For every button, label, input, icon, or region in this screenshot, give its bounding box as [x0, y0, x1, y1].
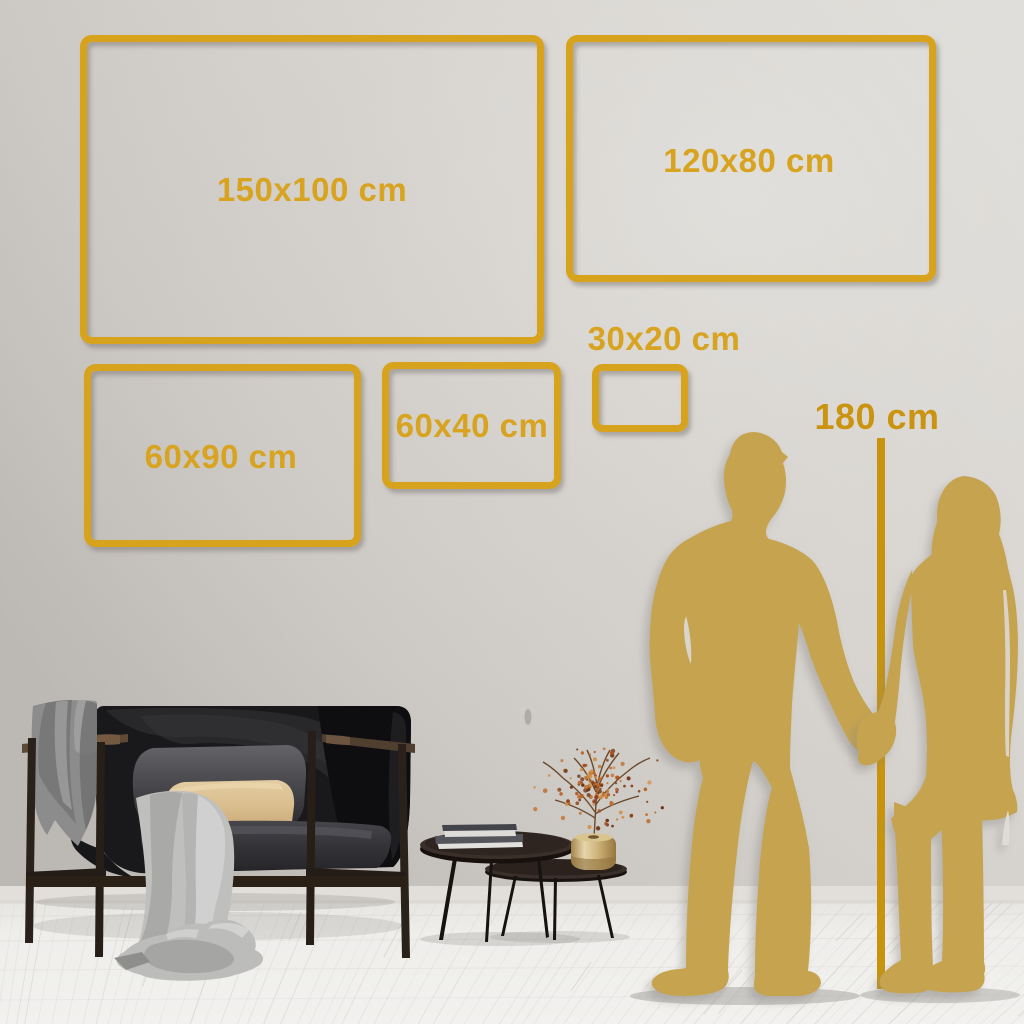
svg-text:30x20 cm: 30x20 cm [588, 320, 741, 357]
svg-text:180 cm: 180 cm [814, 396, 939, 437]
svg-text:60x90 cm: 60x90 cm [145, 438, 298, 475]
svg-text:150x100 cm: 150x100 cm [217, 171, 407, 208]
svg-text:60x40 cm: 60x40 cm [396, 407, 549, 444]
svg-text:120x80 cm: 120x80 cm [663, 142, 834, 179]
